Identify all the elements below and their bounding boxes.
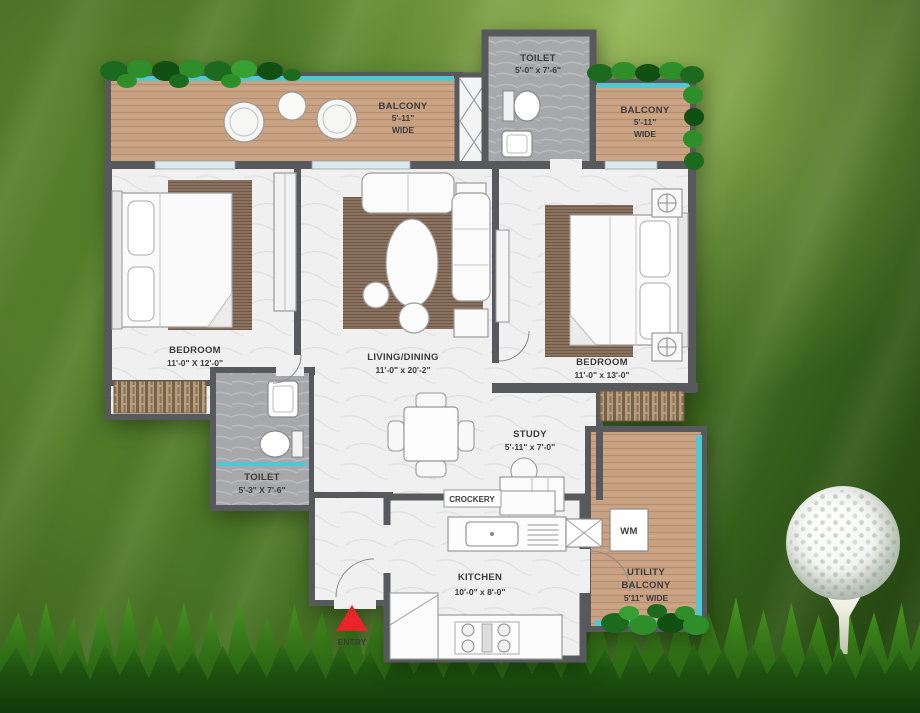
dining-chair: [458, 421, 474, 451]
dining-chair: [388, 421, 404, 451]
pillow: [640, 221, 670, 277]
hob-center-bar: [482, 624, 492, 652]
wardrobe-hatch: [114, 381, 206, 413]
door-gap: [334, 597, 376, 609]
glass-door: [155, 161, 235, 169]
label-utility-2: BALCONY: [621, 580, 670, 591]
bed-headboard: [678, 213, 688, 347]
hedge: [221, 74, 241, 88]
toilet-wc: [514, 91, 540, 121]
window-sill: [217, 462, 307, 466]
hedge: [680, 66, 704, 84]
hedge: [257, 62, 283, 80]
label-study-dims: 5'-11" x 7'-0": [505, 442, 555, 452]
hob-burner: [462, 624, 474, 636]
door-gap: [577, 549, 590, 593]
label-balcony-tl-wide: WIDE: [392, 125, 415, 135]
hedge: [619, 606, 639, 620]
hedge: [675, 606, 695, 620]
door-gap: [382, 525, 393, 573]
label-bedroom-left: BEDROOM: [169, 345, 221, 356]
label-toilet-top: TOILET: [520, 53, 555, 64]
label-kitchen-dims: 10'-0" x 8'-0": [455, 587, 506, 597]
room-foyer: [312, 495, 390, 603]
pouf: [363, 282, 389, 308]
label-bedroom-right: BEDROOM: [576, 357, 628, 368]
label-wm: WM: [620, 526, 637, 537]
hedge: [684, 152, 704, 170]
hedge: [283, 69, 301, 81]
label-utility-dim: 5'11" WIDE: [624, 593, 669, 603]
door-gap: [276, 365, 304, 376]
hedge: [683, 130, 703, 148]
sofa-l: [452, 193, 490, 301]
label-study: STUDY: [513, 429, 547, 440]
railing: [696, 435, 702, 623]
crockery-unit: [500, 491, 555, 515]
floorplan: TOILET 5'-0" x 7'-6" BALCONY 5'-11" WIDE…: [100, 25, 720, 670]
label-toilet-bottom-dims: 5'-3" X 7'-6": [238, 485, 285, 495]
label-balcony-tr-wide: WIDE: [634, 129, 657, 139]
pillow: [128, 267, 154, 321]
toilet-tank: [503, 91, 514, 121]
label-crockery: CROCKERY: [449, 495, 495, 504]
hob-burner: [498, 624, 510, 636]
label-toilet-bottom: TOILET: [244, 472, 279, 483]
pillow: [640, 283, 670, 339]
label-living-dining: LIVING/DINING: [367, 352, 438, 363]
door-gap: [550, 159, 582, 171]
label-balcony-tl-dim: 5'-11": [392, 113, 415, 123]
label-balcony-tl: BALCONY: [378, 101, 427, 112]
tv-panel: [496, 230, 509, 322]
hedge: [647, 604, 667, 618]
hedge: [635, 64, 661, 82]
hedge: [117, 74, 137, 88]
hedge: [684, 108, 704, 126]
golf-ball: [786, 486, 900, 600]
hedge: [587, 64, 613, 82]
label-entry: ENTRY: [338, 637, 367, 647]
glass-door: [605, 161, 657, 169]
hedge: [169, 74, 189, 88]
sink-drain: [490, 532, 494, 536]
balcony-table: [278, 92, 306, 120]
label-bedroom-left-dims: 11'-0" X 12'-0": [167, 358, 223, 368]
hob-burner: [498, 640, 510, 652]
label-toilet-top-dims: 5'-0" x 7'-6": [515, 65, 561, 75]
label-balcony-tr: BALCONY: [620, 105, 669, 116]
wardrobe-hatch: [600, 391, 684, 421]
hob-burner: [462, 640, 474, 652]
hedge: [683, 86, 703, 104]
kitchen-unit: [390, 593, 438, 659]
dining-table: [404, 407, 458, 461]
label-balcony-tr-dim: 5'-11": [634, 117, 657, 127]
railing: [597, 83, 689, 88]
dining-chair: [416, 461, 446, 477]
scene: TOILET 5'-0" x 7'-6" BALCONY 5'-11" WIDE…: [0, 0, 920, 713]
pillow: [128, 201, 154, 255]
label-kitchen: KITCHEN: [458, 572, 502, 583]
coffee-table: [386, 219, 438, 307]
label-utility: UTILITY: [627, 567, 665, 578]
side-table: [454, 309, 488, 337]
toilet-tank: [292, 431, 303, 457]
hedge: [611, 62, 637, 80]
bed-headboard: [112, 191, 122, 329]
glass-door: [312, 161, 410, 169]
label-living-dining-dims: 11'-0" x 20'-2": [375, 365, 430, 375]
label-bedroom-right-dims: 11'-0" x 13'-0": [574, 370, 629, 380]
toilet-wc: [260, 431, 290, 457]
pouf: [399, 303, 429, 333]
